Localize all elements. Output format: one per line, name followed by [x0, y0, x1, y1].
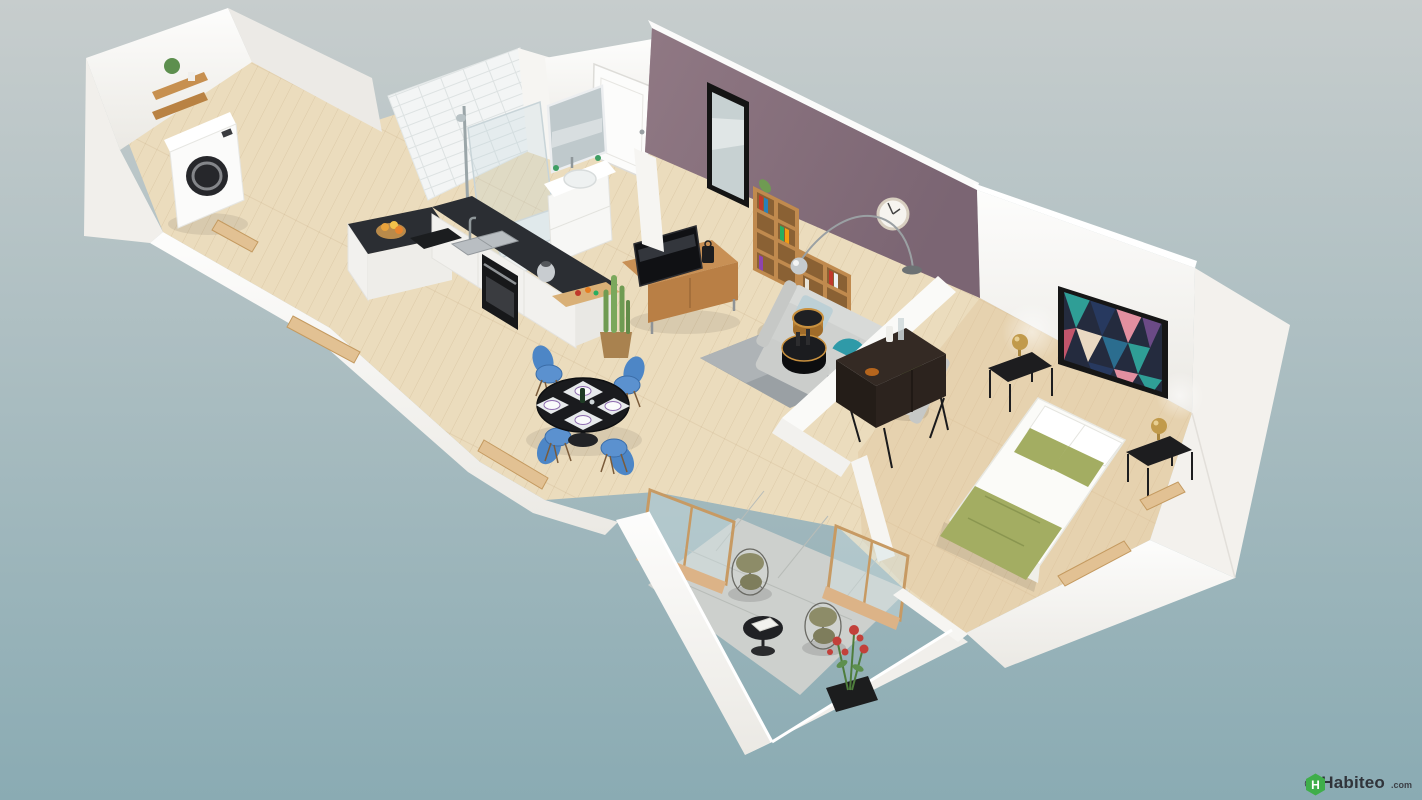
- logo-letter: H: [1311, 778, 1320, 792]
- brass-lamp: [1151, 418, 1167, 434]
- drum-table-black-top: [782, 335, 826, 361]
- soap-bottle-2: [595, 155, 601, 161]
- candlestick-2: [806, 329, 810, 345]
- door-handle: [640, 130, 645, 135]
- shelf-jar: [188, 72, 195, 81]
- habiteo-logo-icon: H: [1305, 773, 1326, 796]
- vanity-basin: [564, 170, 596, 188]
- chair-seat: [601, 439, 627, 457]
- tv-stand-shadow: [630, 310, 740, 334]
- white-bottle: [886, 326, 893, 342]
- chair-cushion: [809, 607, 837, 627]
- lamp-globe-highlight: [793, 260, 799, 266]
- shower-head: [456, 114, 466, 122]
- lantern-body: [702, 246, 714, 263]
- kettle-lid: [541, 261, 551, 267]
- brass-lamp: [1012, 334, 1028, 350]
- candlestick-1: [796, 332, 800, 346]
- table-base: [751, 646, 775, 656]
- entry-wall-mirror: [707, 82, 749, 208]
- chair-seat: [536, 365, 562, 383]
- glass-vase: [898, 318, 904, 340]
- chair-cushion: [736, 553, 764, 573]
- watermark-brand: Habiteo: [1321, 773, 1385, 793]
- copper-bowl: [865, 368, 879, 376]
- floorplan-render: © H Habiteo.com: [0, 0, 1422, 800]
- watermark-suffix: .com: [1391, 780, 1412, 790]
- lamp-globe: [791, 258, 808, 275]
- mirror-reflection: [712, 118, 744, 150]
- cactus-pot: [600, 332, 632, 358]
- chair-seat-pad: [813, 628, 835, 644]
- floorplan-svg: [0, 0, 1422, 800]
- watermark: © H Habiteo.com: [1305, 773, 1412, 793]
- chair-seat-pad: [740, 574, 762, 590]
- table-base: [568, 433, 598, 447]
- wine-glass: [590, 400, 595, 405]
- lamp-base: [902, 266, 922, 275]
- wine-bottle: [580, 388, 585, 403]
- shelf-plant-leaves: [164, 58, 180, 74]
- soap-bottle-1: [553, 165, 559, 171]
- drum-table-wood-top: [793, 309, 823, 327]
